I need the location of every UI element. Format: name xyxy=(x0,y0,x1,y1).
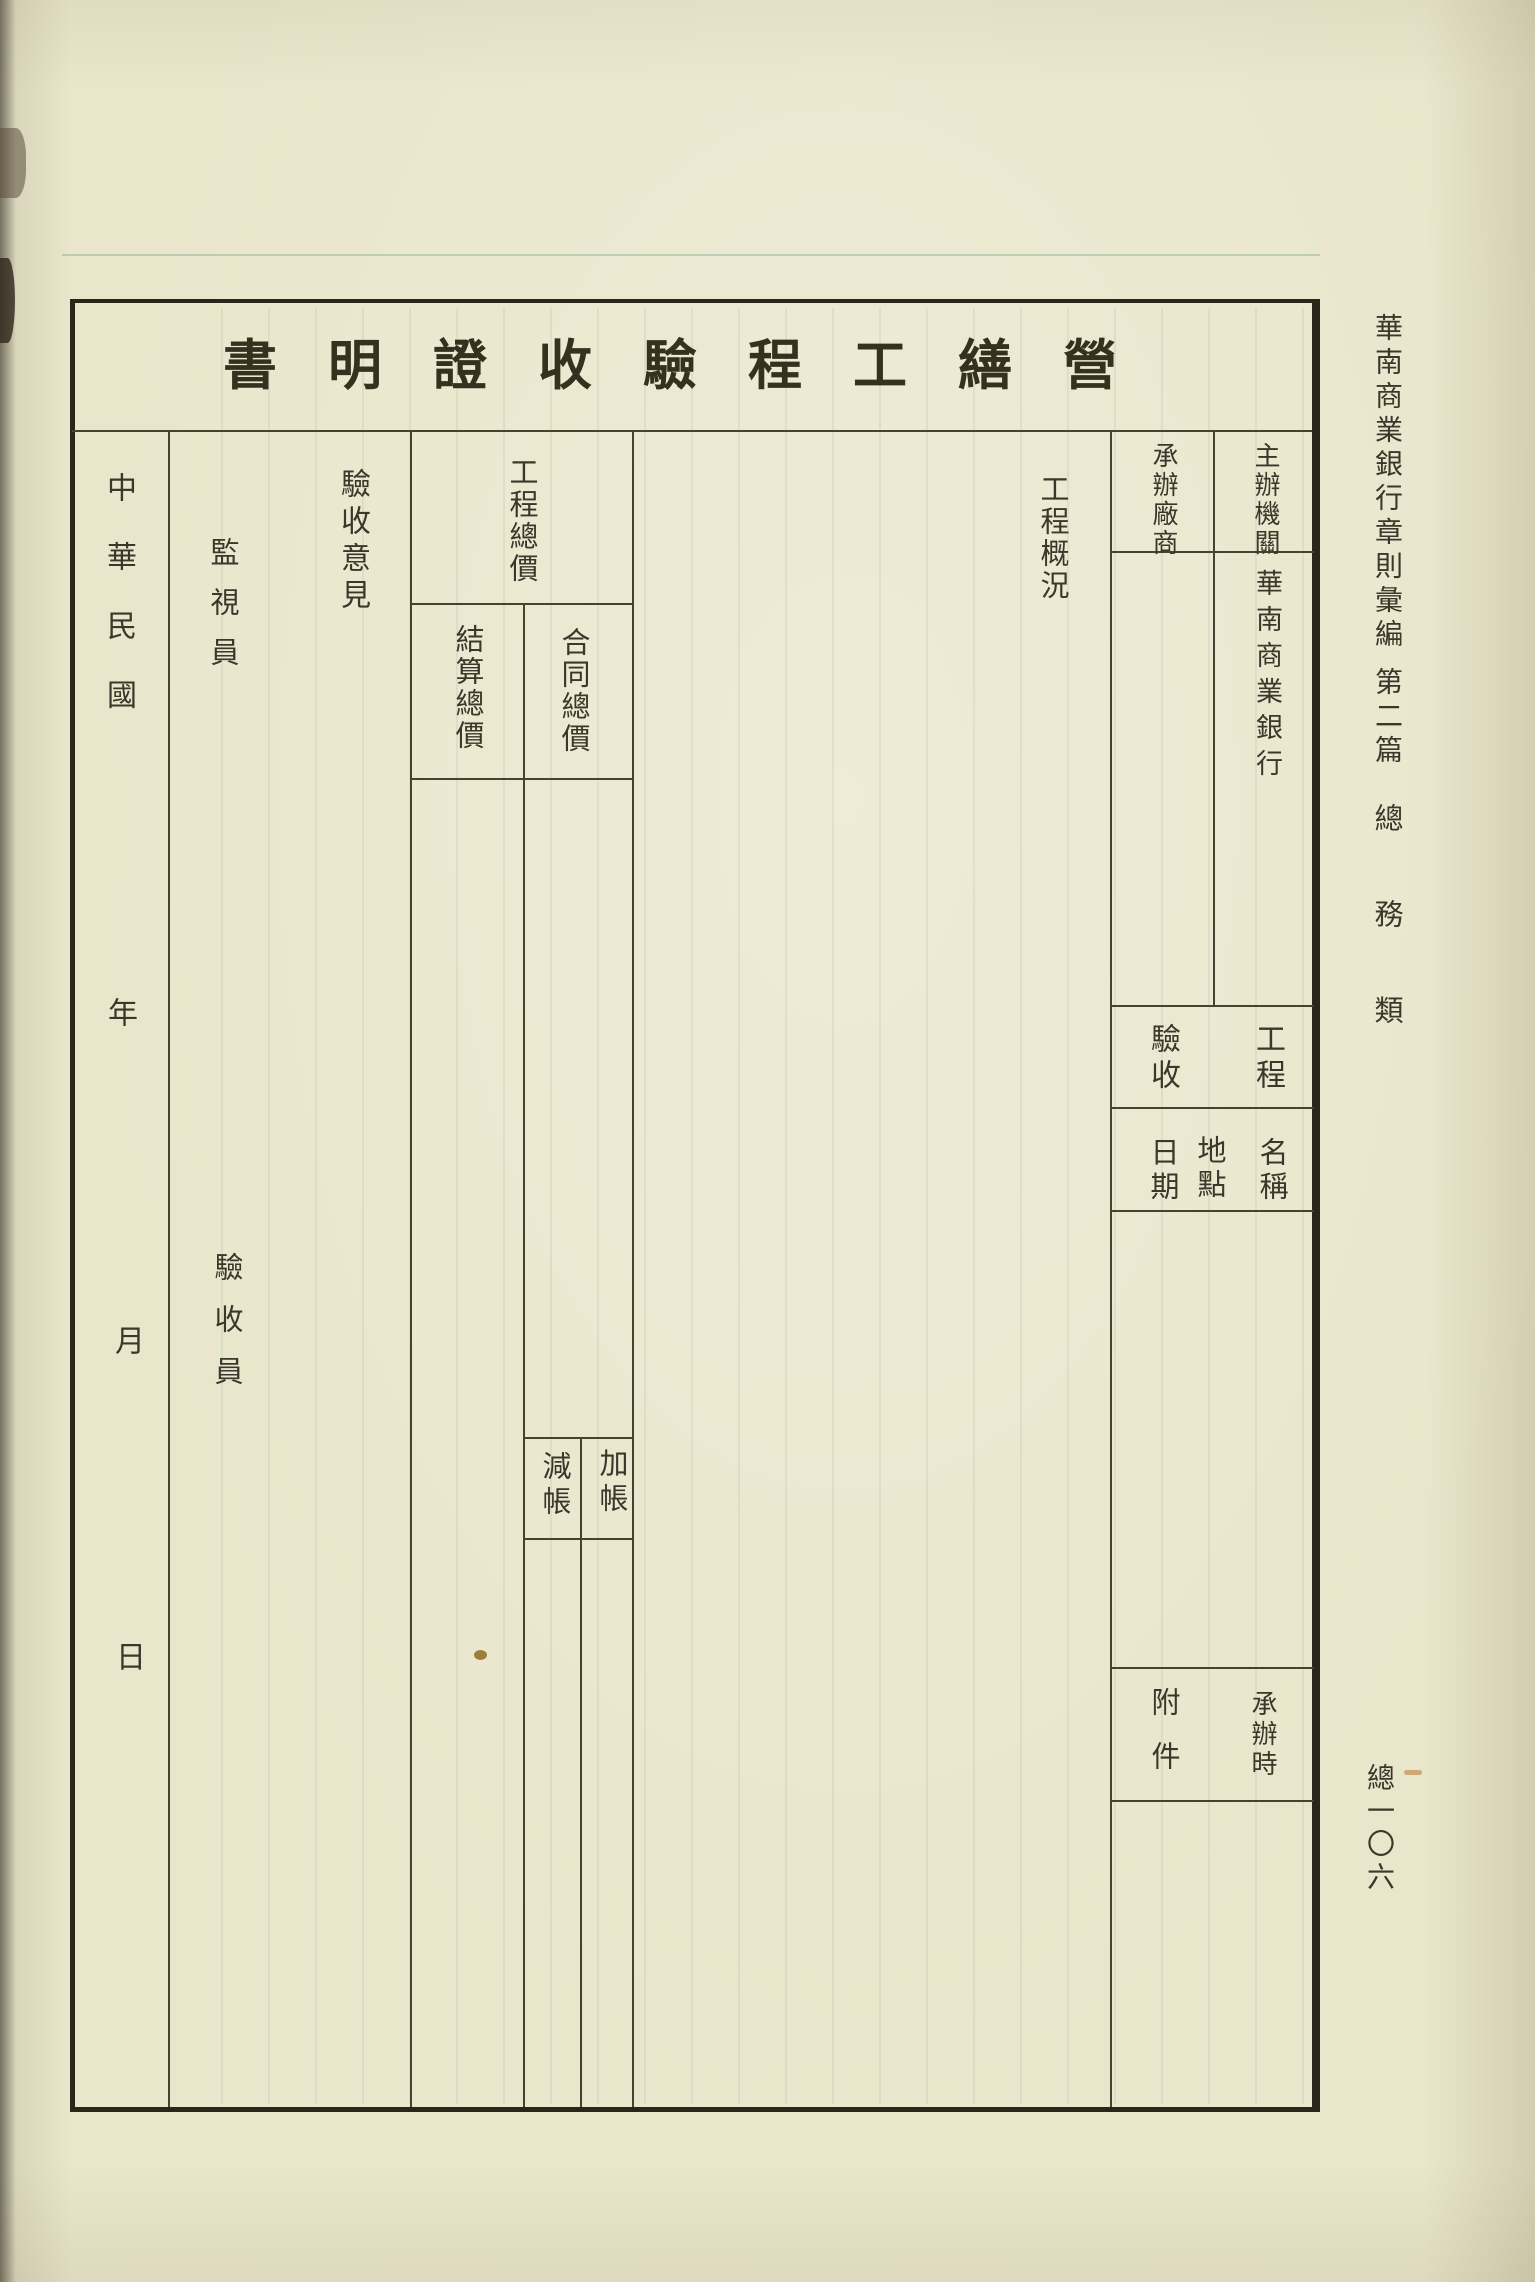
organizer-label: 主辦機關 xyxy=(1252,442,1278,558)
day-label: 日 xyxy=(112,1641,142,1671)
hline-subtotal-labels-bottom xyxy=(410,778,634,780)
margin-page-number: 總一〇六 xyxy=(1364,1763,1392,1895)
location-label: 地點 xyxy=(1194,1135,1223,1203)
hline-name-location-date-row xyxy=(1110,1210,1314,1212)
organizer-value: 華南商業銀行 xyxy=(1253,569,1280,785)
vline-right-group-left xyxy=(1110,431,1112,2107)
print-through-hline xyxy=(62,254,1320,256)
acceptance-label: 驗收 xyxy=(1147,1023,1177,1095)
date-label: 日期 xyxy=(1147,1137,1176,1205)
hline-attachments-bottom xyxy=(1110,1800,1314,1802)
settlement-total-label: 結算總價 xyxy=(452,624,481,752)
vline-price-group-right xyxy=(632,431,634,2107)
hline-attachments-top xyxy=(1110,1667,1314,1669)
table-border-top xyxy=(70,299,1320,303)
month-label: 月 xyxy=(111,1325,141,1355)
opinion-label: 驗收意見 xyxy=(337,468,367,616)
deductions-label: 減帳 xyxy=(539,1451,568,1521)
supervisor-label: 監視員 xyxy=(207,537,236,687)
at-contract-label: 承辦時 xyxy=(1249,1690,1275,1780)
hline-adjustment-bottom xyxy=(523,1538,634,1540)
gutter-shadow xyxy=(0,0,16,2282)
project-label: 工程 xyxy=(1252,1023,1282,1095)
scanned-page: 書明證收驗程工繕營 主辦機關 承辦廠商 華南商業銀行 工程 驗收 名稱 地點 日… xyxy=(0,0,1535,2282)
paper-speck xyxy=(474,1650,487,1660)
vline-contractor-organizer-divider xyxy=(1213,431,1215,1006)
hline-organizer-section-bottom xyxy=(1110,1005,1314,1007)
table-border-left xyxy=(70,299,75,2112)
inspector-label: 驗收員 xyxy=(211,1252,240,1408)
overview-label: 工程概況 xyxy=(1037,474,1066,602)
vline-settlement-contract-divider xyxy=(523,604,525,2107)
form-title: 書明證收驗程工繕營 xyxy=(223,339,1168,393)
margin-category: 總務類 xyxy=(1371,803,1400,1091)
hline-project-acceptance-row xyxy=(1110,1107,1314,1109)
vline-date-column xyxy=(168,431,170,2107)
year-label: 年 xyxy=(104,997,134,1027)
era-label: 中華民國 xyxy=(103,472,133,748)
margin-section: 第二篇 xyxy=(1372,667,1400,769)
hline-total-price-header xyxy=(410,603,634,605)
margin-book-title: 華南商業銀行章則彙編 xyxy=(1372,313,1400,653)
gutter-blob-mid xyxy=(0,258,15,343)
table-border-bottom xyxy=(70,2107,1320,2112)
total-price-label: 工程總價 xyxy=(506,457,535,585)
attachments-label: 附件 xyxy=(1148,1687,1177,1795)
title-row-underline xyxy=(72,430,1312,432)
paper-speck-small xyxy=(1404,1770,1422,1775)
hline-organizer-header-bottom xyxy=(1110,551,1314,553)
gutter-blob-top xyxy=(0,128,26,198)
hline-adjustment-top xyxy=(523,1437,634,1439)
contractor-label: 承辦廠商 xyxy=(1150,442,1176,558)
contract-total-label: 合同總價 xyxy=(558,627,587,755)
vline-signature-column xyxy=(410,431,412,2107)
table-border-right xyxy=(1312,299,1320,2112)
additions-label: 加帳 xyxy=(596,1448,625,1518)
name-label: 名稱 xyxy=(1256,1137,1285,1205)
